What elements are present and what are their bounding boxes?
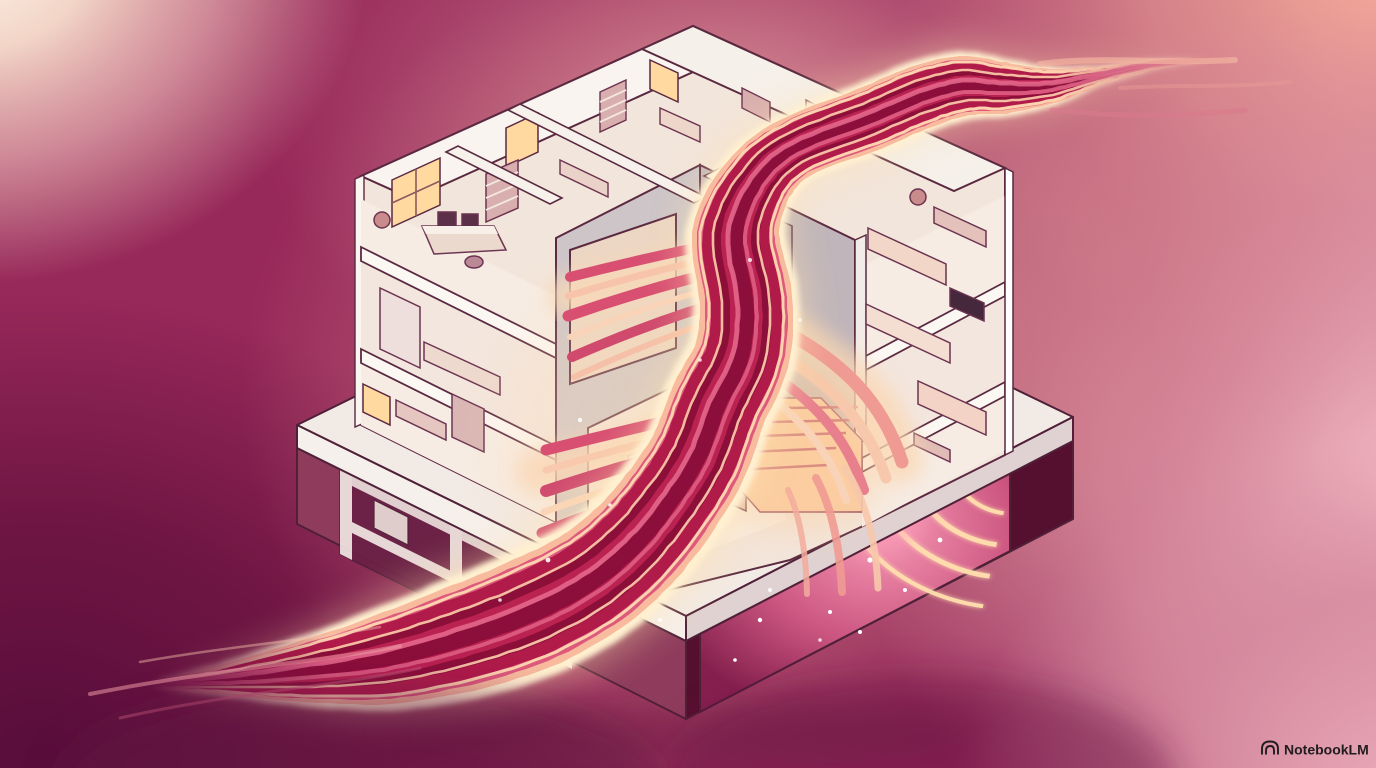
svg-text:NotebookLM: NotebookLM (1284, 742, 1369, 758)
